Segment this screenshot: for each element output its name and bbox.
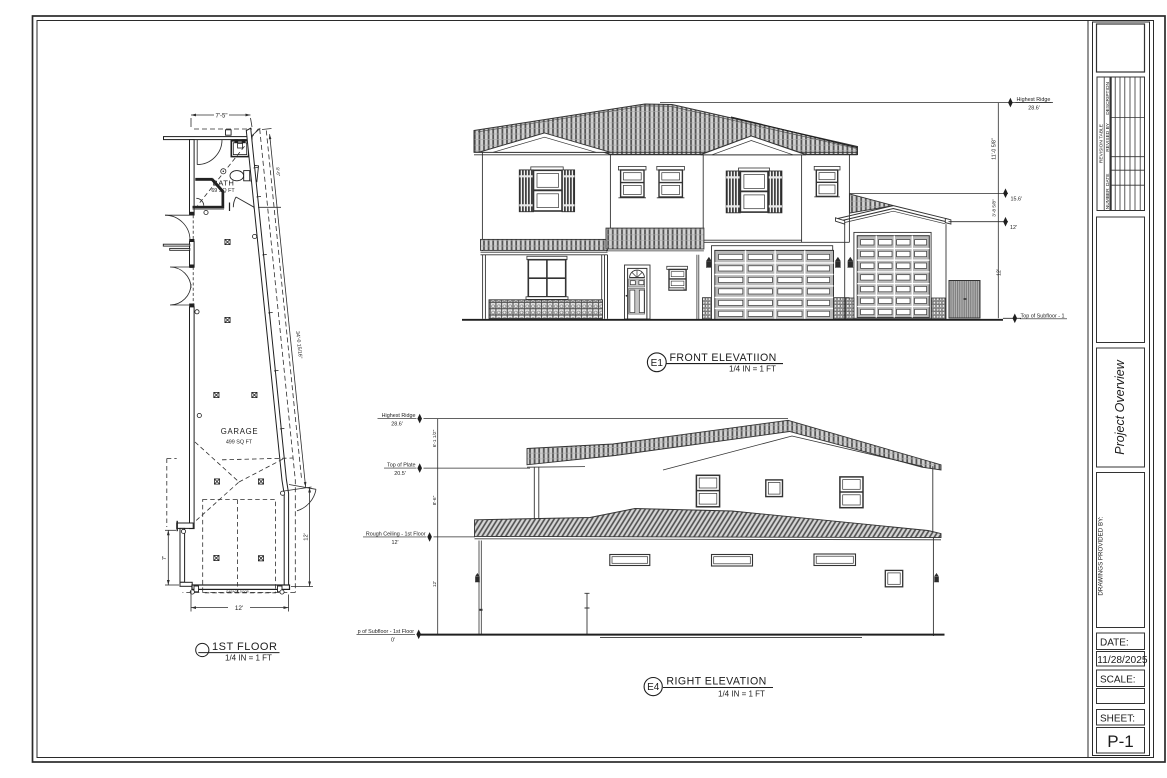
svg-text:DATE: DATE — [1105, 174, 1111, 186]
svg-text:E4: E4 — [647, 682, 660, 693]
svg-text:Project Overview: Project Overview — [1113, 359, 1127, 454]
svg-text:12': 12' — [303, 533, 309, 541]
svg-text:12': 12' — [235, 605, 243, 612]
svg-text:7': 7' — [162, 556, 168, 560]
svg-text:Top of Subfloor - 1: Top of Subfloor - 1 — [1021, 313, 1065, 319]
svg-text:28.6': 28.6' — [391, 422, 403, 428]
svg-text:28.6': 28.6' — [1028, 106, 1040, 112]
svg-text:1/4 IN = 1 FT: 1/4 IN = 1 FT — [225, 654, 272, 663]
svg-text:GARAGE: GARAGE — [221, 427, 259, 436]
svg-text:NUMBER: NUMBER — [1105, 188, 1111, 209]
svg-text:SCALE:: SCALE: — [1100, 675, 1136, 686]
svg-text:69 SQ FT: 69 SQ FT — [211, 188, 235, 194]
svg-text:12': 12' — [432, 581, 438, 587]
svg-text:1/4 IN = 1 FT: 1/4 IN = 1 FT — [718, 689, 765, 698]
svg-text:DATE:: DATE: — [1100, 638, 1129, 649]
svg-text:0': 0' — [391, 637, 395, 643]
svg-text:REVISION TABLE: REVISION TABLE — [1098, 124, 1104, 163]
svg-text:Rough Ceiling - 1st Floor: Rough Ceiling - 1st Floor — [366, 532, 426, 538]
svg-text:SHEET:: SHEET: — [1100, 714, 1135, 725]
svg-text:DRAWINGS PROVIDED BY:: DRAWINGS PROVIDED BY: — [1098, 516, 1105, 595]
svg-text:12': 12' — [996, 269, 1002, 276]
svg-text:12': 12' — [391, 540, 398, 546]
svg-text:8'-6": 8'-6" — [275, 167, 281, 177]
svg-text:P-1: P-1 — [1107, 732, 1133, 751]
svg-text:3'-8 5/8": 3'-8 5/8" — [991, 199, 997, 217]
svg-text:12': 12' — [1010, 225, 1017, 231]
svg-text:499 SQ FT: 499 SQ FT — [226, 440, 253, 446]
svg-text:1ST FLOOR: 1ST FLOOR — [212, 641, 277, 653]
svg-text:11/28/2025: 11/28/2025 — [1097, 655, 1148, 666]
svg-text:RIGHT ELEVATION: RIGHT ELEVATION — [666, 675, 766, 687]
svg-text:20.5': 20.5' — [394, 471, 406, 477]
svg-text:FRONT ELEVATIION: FRONT ELEVATIION — [670, 352, 777, 364]
svg-text:7'-5": 7'-5" — [216, 113, 228, 119]
svg-text:11'-0 5/8": 11'-0 5/8" — [991, 138, 997, 160]
svg-text:BATH: BATH — [213, 179, 235, 188]
svg-text:8'-6": 8'-6" — [432, 495, 438, 505]
svg-text:REVISED BY: REVISED BY — [1105, 122, 1111, 152]
svg-text:p of Subfloor - 1st Floor: p of Subfloor - 1st Floor — [358, 629, 415, 635]
svg-text:15.6': 15.6' — [1011, 196, 1023, 202]
svg-text:DESCRIPTION: DESCRIPTION — [1105, 81, 1111, 114]
svg-text:E1: E1 — [651, 358, 664, 369]
svg-text:6'-1 1/2": 6'-1 1/2" — [432, 429, 438, 447]
svg-text:1/4 IN = 1 FT: 1/4 IN = 1 FT — [729, 365, 776, 374]
